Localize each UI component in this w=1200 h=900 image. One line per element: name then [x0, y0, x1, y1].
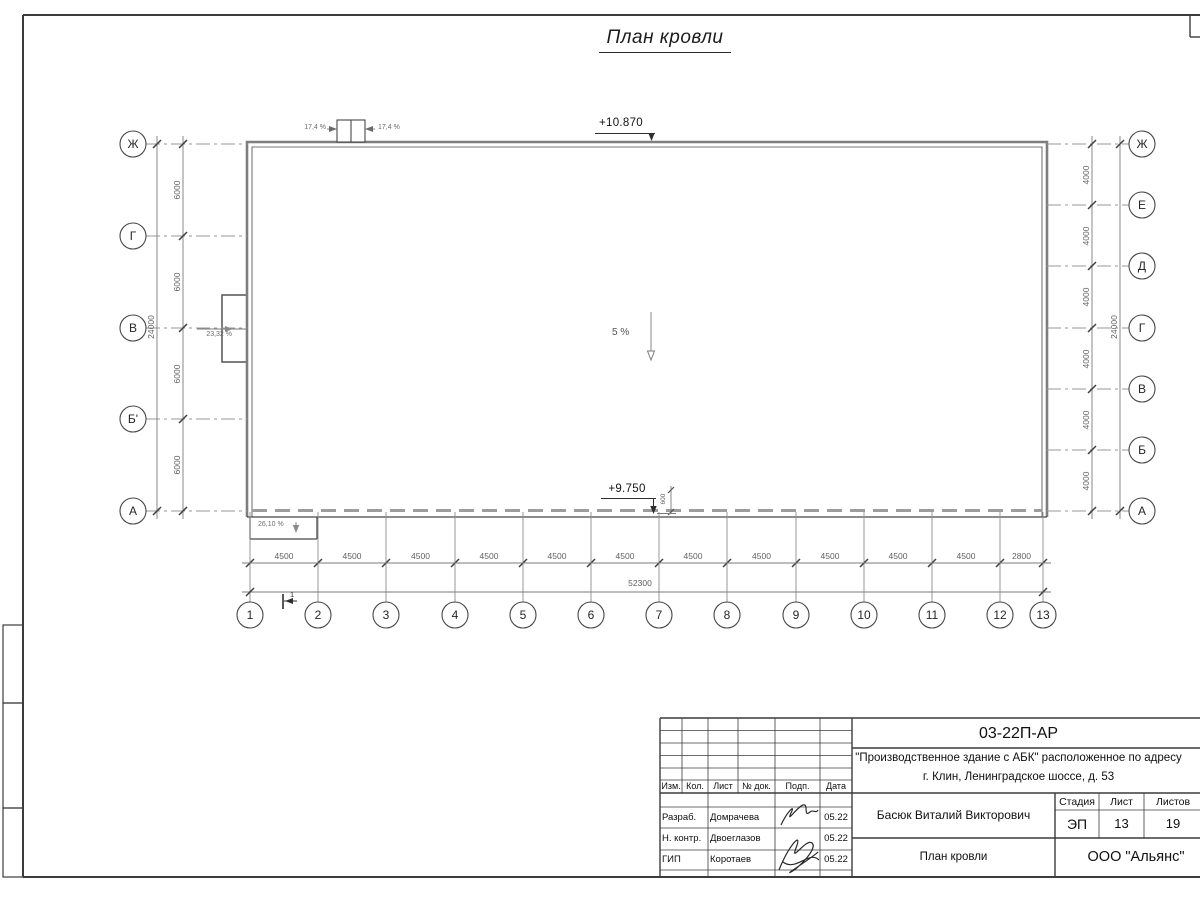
- sign-date-3: 05.22: [820, 850, 852, 870]
- axis-label-bottom: 2: [305, 602, 331, 628]
- axis-label-bottom: 6: [578, 602, 604, 628]
- project-name-line1: "Производственное здание с АБК" располож…: [852, 752, 1185, 764]
- stage-header: Стадия: [1055, 794, 1099, 810]
- rev-header-list: Лист: [708, 780, 738, 793]
- side-stamp-box: [3, 808, 23, 877]
- page-title-text: План кровли: [599, 27, 732, 53]
- elevation-bottom-label: +9.750: [599, 483, 655, 495]
- dim-total-right: 24000: [1108, 307, 1120, 347]
- axis-label-right: В: [1129, 376, 1155, 402]
- slope-bottom-label: 26,10 %: [258, 521, 284, 528]
- sign-name-1: Домрачева: [710, 807, 772, 828]
- arrowhead-icon: [648, 133, 654, 141]
- axis-label-right: Б: [1129, 437, 1155, 463]
- dim-value-bottom: 4500: [591, 551, 659, 561]
- axis-label-bottom: 11: [919, 602, 945, 628]
- dim-value-right: 4000: [1080, 400, 1092, 440]
- axis-label-left: А: [120, 498, 146, 524]
- sign-role-2: Н. контр.: [662, 828, 707, 850]
- arrowhead-icon: [329, 126, 337, 132]
- dim-value-bottom: 4500: [523, 551, 591, 561]
- dim-total-bottom: 52300: [606, 578, 674, 588]
- axis-label-right: Д: [1129, 253, 1155, 279]
- sheet-number: 13: [1099, 810, 1144, 838]
- sign-name-3: Коротаев: [710, 850, 772, 870]
- dim-value-left: 6000: [171, 262, 183, 302]
- sign-name-2: Двоеглазов: [710, 828, 772, 850]
- axis-label-bottom: 1: [237, 602, 263, 628]
- dim-value-left: 6000: [171, 170, 183, 210]
- axis-label-bottom: 5: [510, 602, 536, 628]
- dim-value-right: 4000: [1080, 155, 1092, 195]
- axis-label-bottom: 7: [646, 602, 672, 628]
- slope-hatch-left-label: 17,4 %: [290, 124, 326, 131]
- axis-label-right: Е: [1129, 192, 1155, 218]
- rev-header-doc: № док.: [738, 780, 775, 793]
- axis-label-bottom: 13: [1030, 602, 1056, 628]
- stage-value: ЭП: [1055, 810, 1099, 838]
- parapet-dim-label: 600: [658, 484, 670, 514]
- drawing-title-cell: План кровли: [852, 838, 1055, 877]
- elevation-top-label: +10.870: [590, 117, 652, 129]
- dim-value-bottom: 4500: [728, 551, 796, 561]
- rev-header-podp: Подп.: [775, 780, 820, 793]
- sign-date-2: 05.22: [820, 828, 852, 850]
- dim-value-right: 4000: [1080, 461, 1092, 501]
- axis-label-left: Б': [120, 406, 146, 432]
- page-title: План кровли: [540, 27, 790, 53]
- dim-value-bottom: 4500: [864, 551, 932, 561]
- dim-value-bottom: 4500: [318, 551, 386, 561]
- axis-label-bottom: 8: [714, 602, 740, 628]
- signature-1: [781, 805, 818, 825]
- dim-value-right: 4000: [1080, 277, 1092, 317]
- sheets-total: 19: [1144, 810, 1200, 838]
- axis-label-right: А: [1129, 498, 1155, 524]
- signature-2: [779, 840, 819, 872]
- company-name: ООО "Альянс": [1055, 838, 1200, 877]
- dim-value-bottom: 4500: [455, 551, 523, 561]
- axis-label-bottom: 4: [442, 602, 468, 628]
- dim-value-bottom: 4500: [659, 551, 727, 561]
- rev-header-data: Дата: [820, 780, 852, 793]
- axis-label-bottom: 10: [851, 602, 877, 628]
- drawing-sheet: План кровли +10.870 +9.750 5 % 17,4 % 17…: [0, 0, 1200, 900]
- sign-role-1: Разраб.: [662, 807, 707, 828]
- roof-outline-inner: [252, 147, 1042, 517]
- axis-label-bottom: 12: [987, 602, 1013, 628]
- slope-hatch-right-label: 17,4 %: [378, 124, 400, 131]
- axis-label-right: Г: [1129, 315, 1155, 341]
- rev-header-izm: Изм.: [660, 780, 682, 793]
- axis-label-right: Ж: [1129, 131, 1155, 157]
- axis-label-left: Ж: [120, 131, 146, 157]
- dim-value-left: 6000: [171, 354, 183, 394]
- dim-value-bottom: 4500: [250, 551, 318, 561]
- rev-header-kol: Кол.: [682, 780, 708, 793]
- arrowhead-icon: [293, 525, 299, 533]
- chief-name: Басюк Виталий Викторович: [852, 793, 1055, 838]
- slope-left-label: 23,32 %: [190, 331, 232, 338]
- section-mark-label: 1: [290, 590, 294, 599]
- dim-total-left: 24000: [145, 307, 157, 347]
- sheet-header: Лист: [1099, 794, 1144, 810]
- dim-value-bottom: 4500: [387, 551, 455, 561]
- axis-label-left: Г: [120, 223, 146, 249]
- dim-value-right: 4000: [1080, 339, 1092, 379]
- arrowhead-icon: [365, 126, 373, 132]
- dim-value-left: 6000: [171, 445, 183, 485]
- slope-center-label: 5 %: [612, 327, 629, 338]
- dim-value-right: 4000: [1080, 216, 1092, 256]
- dim-value-bottom: 2800: [988, 551, 1056, 561]
- sign-role-3: ГИП: [662, 850, 707, 870]
- slope-center-arrowhead: [648, 351, 655, 360]
- dim-value-bottom: 4500: [796, 551, 864, 561]
- doc-number: 03-22П-АР: [852, 721, 1185, 747]
- sign-date-1: 05.22: [820, 807, 852, 828]
- axis-label-bottom: 3: [373, 602, 399, 628]
- axis-label-bottom: 9: [783, 602, 809, 628]
- sheets-total-header: Листов: [1144, 794, 1200, 810]
- side-stamp-box: [3, 625, 23, 703]
- axis-label-left: В: [120, 315, 146, 341]
- project-name-line2: г. Клин, Ленинградское шоссе, д. 53: [852, 771, 1185, 783]
- roof-outline-outer: [247, 142, 1047, 517]
- side-stamp-box: [3, 703, 23, 808]
